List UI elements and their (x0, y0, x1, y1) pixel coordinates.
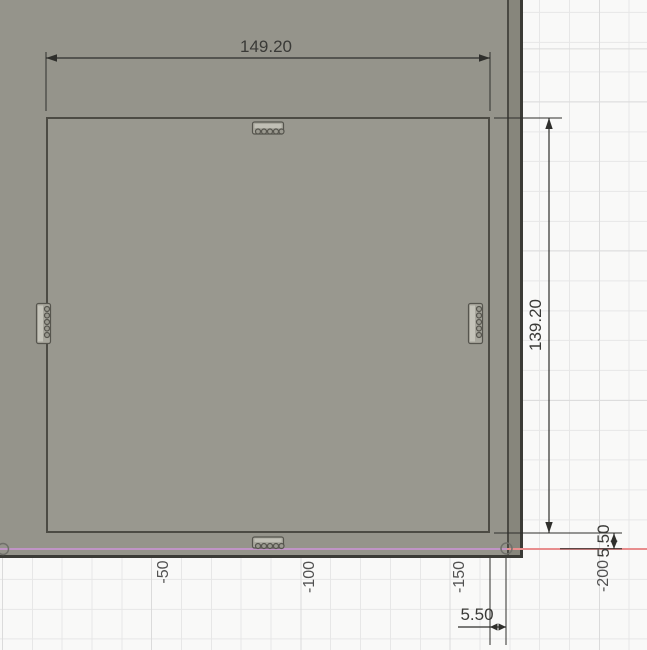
cad-viewport: 149.20 139.20 5.50 5.50 (0, 0, 647, 650)
sketch-profile-rect[interactable] (46, 117, 490, 533)
model-body-bottom-edge (0, 555, 523, 558)
model-body-side-face[interactable] (507, 0, 523, 556)
projected-edge-line[interactable] (0, 548, 507, 550)
